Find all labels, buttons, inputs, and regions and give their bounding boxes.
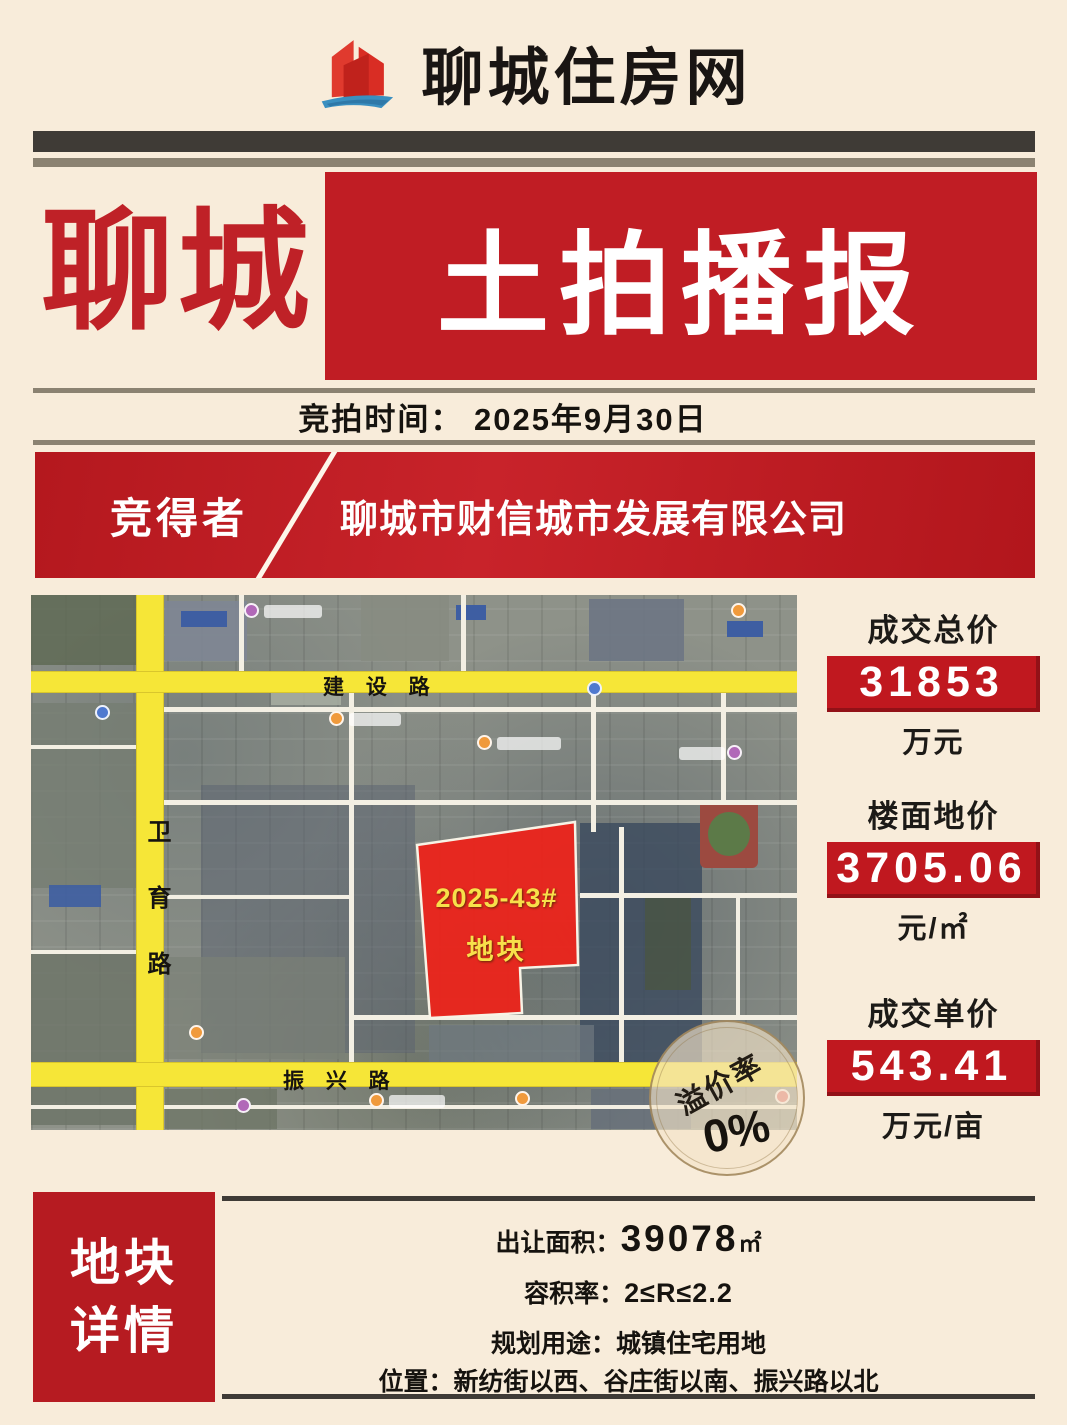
site-logo-icon <box>315 26 399 118</box>
detail-row-far: 容积率：2≤R≤2.2 <box>222 1274 1035 1310</box>
stat-value: 3705.06 <box>836 844 1026 893</box>
detail-label: 位置： <box>378 1368 453 1396</box>
detail-value: 新纺街以西、谷庄街以南、振兴路以北 <box>454 1368 879 1396</box>
auction-time-value: 2025年9月30日 <box>474 402 708 437</box>
auction-time-label: 竞拍时间： <box>298 402 463 437</box>
time-divider-top <box>33 388 1035 393</box>
winner-label: 竞得者 <box>73 452 285 578</box>
plot-details-title-line2: 详情 <box>70 1306 178 1356</box>
stat-floor-price: 楼面地价 3705.06 元/㎡ <box>827 798 1040 947</box>
site-name: 聊城住房网 <box>421 27 751 117</box>
headline-block: 土拍播报 <box>325 172 1037 380</box>
plot-code: 2025-43# <box>409 883 584 914</box>
time-divider-bottom <box>33 440 1035 445</box>
detail-value: 39078 <box>621 1218 739 1259</box>
stat-value: 543.41 <box>851 1042 1013 1091</box>
winner-banner: 竞得者 聊城市财信城市发展有限公司 <box>35 452 1035 578</box>
details-divider-bottom <box>222 1394 1035 1399</box>
stat-unit: 万元/亩 <box>827 1103 1040 1145</box>
stat-unit-price: 成交单价 543.41 万元/亩 <box>827 996 1040 1145</box>
detail-row-location: 位置：新纺街以西、谷庄街以南、振兴路以北 <box>222 1362 1035 1398</box>
plot-name: 地块 <box>409 928 584 967</box>
detail-value: 2≤R≤2.2 <box>624 1278 733 1308</box>
stat-label: 成交单价 <box>827 996 1040 1034</box>
detail-label: 规划用途： <box>491 1330 616 1358</box>
top-dark-bar <box>33 131 1035 152</box>
detail-row-area: 出让面积：39078㎡ <box>222 1218 1035 1260</box>
land-auction-poster: 聊城住房网 聊城 土拍播报 竞拍时间： 2025年9月30日 竞得者 聊城市财信… <box>0 0 1067 1425</box>
detail-value: 城镇住宅用地 <box>616 1330 766 1358</box>
stat-unit: 万元 <box>827 719 1040 761</box>
detail-label: 容积率： <box>524 1280 624 1308</box>
headline-text: 土拍播报 <box>437 195 925 357</box>
detail-suffix: ㎡ <box>738 1230 761 1256</box>
stat-total-price: 成交总价 31853 万元 <box>827 612 1040 761</box>
auction-time: 竞拍时间： 2025年9月30日 <box>33 394 973 439</box>
details-divider-top <box>222 1196 1035 1201</box>
stat-label: 成交总价 <box>827 612 1040 650</box>
site-header: 聊城住房网 <box>0 22 1067 122</box>
stat-value-block: 3705.06 <box>827 842 1040 898</box>
stat-label: 楼面地价 <box>827 798 1040 836</box>
plot-label-group: 2025-43# 地块 <box>409 883 584 967</box>
plot-details-title: 地块 详情 <box>33 1192 215 1402</box>
stat-value-block: 543.41 <box>827 1040 1040 1096</box>
top-olive-bar <box>33 158 1035 167</box>
stat-value-block: 31853 <box>827 656 1040 712</box>
winner-company: 聊城市财信城市发展有限公司 <box>340 452 1000 578</box>
premium-rate-stamp: 溢价率 0% <box>649 1020 805 1176</box>
detail-row-usage: 规划用途：城镇住宅用地 <box>222 1324 1035 1360</box>
detail-label: 出让面积： <box>496 1229 621 1257</box>
plot-details-title-line1: 地块 <box>70 1238 178 1288</box>
city-name: 聊城 <box>30 196 325 354</box>
stat-value: 31853 <box>859 658 1004 707</box>
stat-unit: 元/㎡ <box>827 905 1040 947</box>
